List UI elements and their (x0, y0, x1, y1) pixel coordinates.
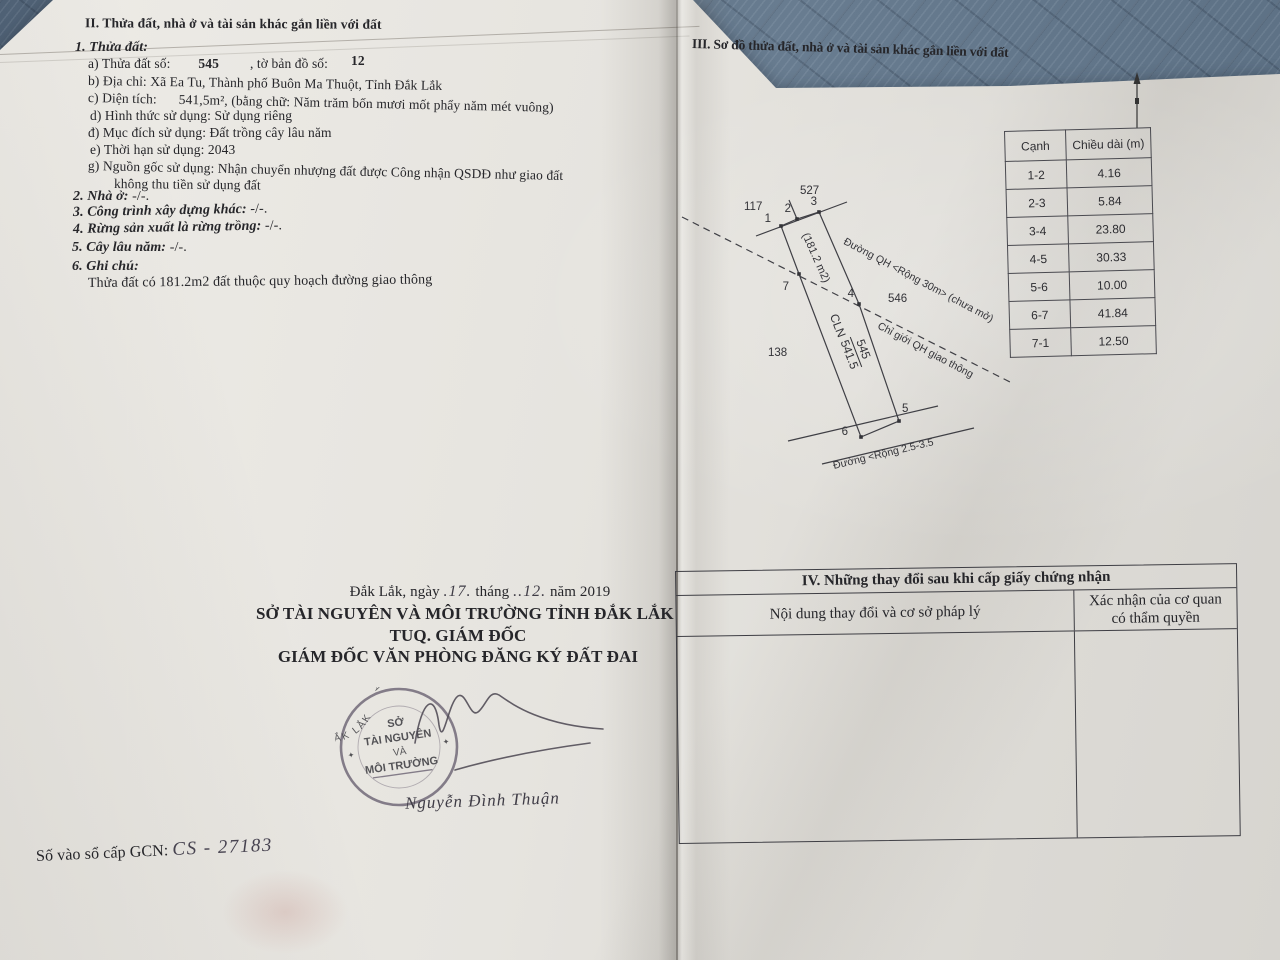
gcn-value-handwritten: CS - 27183 (172, 835, 273, 860)
line-use-form: d) Hình thức sử dụng: Sử dụng riêng (90, 108, 292, 124)
edge-length: 41.84 (1070, 298, 1156, 328)
photo-of-land-certificate: II. Thửa đất, nhà ở và tài sản khác gắn … (0, 0, 1280, 960)
line-perennial: 5. Cây lâu năm: -/-. (72, 240, 187, 256)
table-row: 3-423.80 (1007, 214, 1154, 246)
edge-col1-header: Cạnh (1005, 130, 1067, 162)
line-construction: 3. Công trình xây dựng khác: -/-. (73, 202, 268, 221)
vertex-label-5: 5 (902, 403, 908, 415)
neighbor-527: 527 (800, 185, 819, 197)
edge-table-header-row: Cạnh Chiều dài (m) (1005, 128, 1152, 162)
section4-changes-table: IV. Những thay đổi sau khi cấp giấy chứn… (675, 563, 1241, 844)
date-line: Đắk Lắk, ngày .17. tháng ..12. năm 2019 (330, 583, 630, 601)
house-label: 2. Nhà ở: (73, 189, 128, 204)
table-row: 6-741.84 (1009, 298, 1156, 330)
forest-value: -/-. (265, 218, 282, 233)
forest-label: 4. Rừng sản xuất là rừng trồng: (73, 219, 262, 237)
parcel-number-value: 545 (198, 56, 219, 71)
section4-body-col1 (677, 631, 1078, 843)
date-day-handwritten: .17. (444, 583, 472, 600)
org-name: SỞ TÀI NGUYÊN VÀ MÔI TRƯỜNG TỈNH ĐẮK LẮK (256, 604, 660, 624)
date-prefix: Đắk Lắk, ngày (350, 584, 440, 600)
section4-body-col2 (1075, 629, 1240, 837)
bottom-road-label: Đường <Rộng 2.5-3.5 (832, 436, 935, 472)
line-notes-heading: 6. Ghi chú: (72, 259, 139, 275)
parcel-number-label: a) Thửa đất số: (88, 56, 170, 71)
area-label: c) Diện tích: (88, 90, 157, 106)
section2-title: II. Thửa đất, nhà ở và tài sản khác gắn … (85, 15, 382, 33)
vertex-label-1: 1 (765, 213, 771, 225)
land-use-code: CLN (827, 312, 849, 339)
neighbor-117: 117 (744, 201, 762, 213)
neighbor-546: 546 (888, 293, 907, 305)
parcel-sketch: 1 2 3 4 5 6 7 117 527 138 546 (181.2 m2)… (660, 168, 1028, 482)
edge-length: 23.80 (1068, 214, 1154, 244)
planning-boundary-label: Chỉ giới QH giao thông (875, 320, 975, 381)
date-year: năm 2019 (550, 584, 610, 600)
line-use-term: e) Thời hạn sử dụng: 2043 (90, 142, 235, 158)
vertex-label-7: 7 (783, 281, 789, 293)
org-office: GIÁM ĐỐC VĂN PHÒNG ĐĂNG KÝ ĐẤT ĐAI (256, 647, 660, 667)
table-row: 4-530.33 (1007, 242, 1154, 274)
gcn-label: Số vào sổ cấp GCN: (36, 842, 169, 865)
line-use-purpose: đ) Mục đích sử dụng: Đất trồng cây lâu n… (88, 125, 332, 141)
vertex-label-2: 2 (785, 203, 791, 215)
table-row: 2-35.84 (1006, 186, 1153, 218)
planned-road-label: Đường QH <Rộng 30m> (chưa mở) (841, 236, 995, 325)
edge-col2-header: Chiều dài (m) (1065, 128, 1151, 160)
table-row: 5-610.00 (1008, 270, 1155, 302)
perennial-label: 5. Cây lâu năm: (72, 240, 166, 255)
section4-col1-header: Nội dung thay đổi và cơ sở pháp lý (676, 590, 1075, 636)
planning-area-label: (181.2 m2) (799, 231, 832, 284)
edge-length: 5.84 (1067, 186, 1153, 216)
parcel-heading: 1. Thửa đất: (75, 40, 148, 56)
house-value: -/-. (132, 189, 149, 204)
date-month-handwritten: ..12. (513, 583, 546, 600)
org-role: TUQ. GIÁM ĐỐC (256, 626, 660, 646)
map-sheet-label: , tờ bản đồ số: (250, 56, 328, 71)
perennial-value: -/-. (170, 240, 187, 255)
neighbor-138: 138 (768, 347, 787, 359)
vertex-label-6: 6 (842, 426, 848, 438)
edge-length: 30.33 (1068, 242, 1154, 272)
vertex-label-3: 3 (811, 196, 817, 208)
edge-length: 4.16 (1066, 158, 1152, 188)
edge-length: 12.50 (1071, 326, 1157, 356)
section4-empty-body (677, 629, 1240, 843)
section4-col2-header: Xác nhận của cơ quan có thẩm quyền (1074, 588, 1237, 630)
map-sheet-value: 12 (351, 53, 365, 68)
construction-value: -/-. (250, 202, 267, 217)
date-mid: tháng (475, 584, 509, 600)
table-row: 7-112.50 (1010, 326, 1157, 358)
section4-col2-line1: Xác nhận của cơ quan (1078, 590, 1232, 610)
stamp-star-left-icon: ✦ (347, 750, 355, 760)
vertex-label-4: 4 (848, 288, 855, 300)
section4-col2-line2: có thẩm quyền (1079, 608, 1233, 628)
north-arrow-icon (1128, 72, 1146, 130)
edge-length: 10.00 (1069, 270, 1155, 300)
line-parcel-number: a) Thửa đất số:545, tờ bản đồ số:12 (88, 56, 365, 72)
construction-label: 3. Công trình xây dựng khác: (73, 202, 247, 220)
line-house: 2. Nhà ở: -/-. (73, 189, 149, 205)
